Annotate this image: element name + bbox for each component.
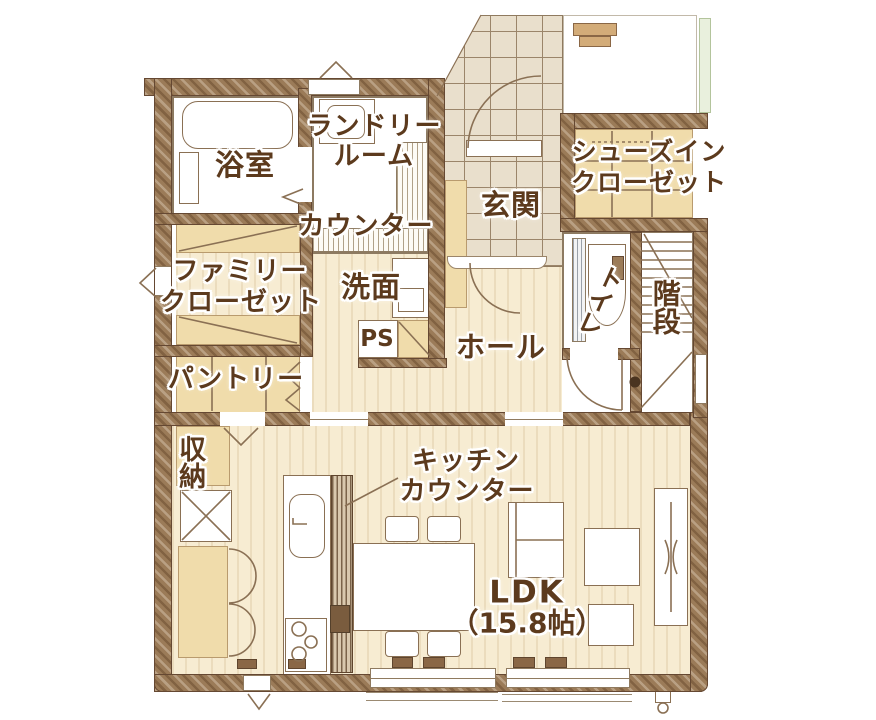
window-frame-tab — [423, 657, 445, 668]
label-kitchen-counter-line2: カウンター — [399, 478, 534, 505]
stairs-window — [695, 354, 707, 404]
toilet-door-opening — [570, 348, 618, 360]
wall-toilet-top — [560, 218, 708, 232]
vanity-bowl — [398, 288, 424, 312]
label-shoes-closet-line2: クローゼット — [571, 170, 727, 196]
label-hall: ホール — [456, 332, 546, 362]
storage-door-opening — [220, 412, 265, 426]
kitchen-opening — [310, 412, 368, 426]
bottom-hatch — [243, 675, 271, 691]
window-frame-tab — [392, 657, 413, 668]
front-door — [466, 140, 542, 157]
family-closet-shelf-bottom — [176, 315, 300, 345]
kitchen-sink — [289, 494, 325, 558]
laundry-door-mark — [320, 62, 352, 78]
outdoor-faucet-circle — [658, 703, 668, 713]
wall-shoes-top — [560, 113, 708, 129]
wall-washroom-bottom — [358, 358, 447, 368]
wall-top — [144, 78, 442, 96]
wall-bathroom-bottom — [154, 213, 313, 225]
label-pipe-space: PS — [360, 327, 393, 351]
wall-right-ldk — [690, 412, 708, 692]
entrance-step-band — [447, 256, 547, 269]
label-kitchen-counter-line1: キッチン — [412, 448, 520, 475]
window-frame-tab — [288, 659, 306, 669]
ldk-window-right — [506, 668, 630, 688]
label-shoes-closet-line1: シューズイン — [572, 139, 727, 165]
sofa — [508, 502, 564, 578]
wall-closet-bottom — [154, 345, 313, 357]
entrance-step-stone-upper — [573, 23, 617, 36]
ldk-window-left — [370, 668, 496, 688]
dining-chair — [385, 631, 419, 657]
window-sill — [366, 692, 498, 701]
entrance-step-stone-lower — [579, 36, 611, 47]
bathtub — [182, 101, 293, 149]
family-closet-shelf-top — [176, 223, 300, 253]
window-sill — [502, 694, 632, 702]
laundry-exterior-door — [308, 79, 360, 95]
label-stairs: 階段 — [650, 279, 679, 335]
refrigerator-space — [180, 490, 232, 542]
window-frame-tab — [545, 657, 567, 668]
label-washroom: 洗面 — [341, 272, 401, 302]
label-pantry: パントリー — [168, 366, 304, 393]
rug — [584, 528, 640, 586]
hatch-door-mark — [248, 694, 270, 709]
label-ldk-line2: （15.8帖） — [450, 608, 603, 637]
bathroom-door — [298, 147, 312, 202]
wall-toilet-stairs-divider — [630, 232, 642, 412]
hall-ldk-sliding-door — [505, 412, 563, 426]
floor-plan: 浴室 ランドリー ルーム カウンター シューズイン クローゼット 玄関 ファミリ… — [0, 0, 876, 720]
tv-board — [654, 488, 688, 626]
label-laundry-line2: ルーム — [334, 143, 414, 170]
shower-tray — [179, 152, 199, 204]
label-ldk-line1: LDK — [489, 577, 565, 610]
window-frame-tab — [513, 657, 535, 668]
kitchen-counter-end — [330, 605, 350, 633]
label-family-closet-line2: クローゼット — [160, 289, 322, 316]
kitchen-counter-top — [331, 475, 353, 673]
toilet-door-arc — [567, 355, 622, 410]
window-frame-tab — [237, 659, 257, 669]
label-counter: カウンター — [298, 213, 433, 240]
hedge-strip — [699, 18, 711, 113]
label-entrance: 玄関 — [481, 190, 541, 220]
label-laundry-line1: ランドリー — [306, 113, 441, 140]
dining-chair — [385, 516, 419, 542]
label-storage: 収納 — [175, 435, 203, 489]
dining-chair — [427, 516, 461, 542]
ps-duct-box — [398, 320, 432, 358]
kitchen-cabinet — [178, 546, 228, 658]
label-family-closet-line1: ファミリー — [172, 258, 307, 285]
label-bathroom: 浴室 — [215, 150, 275, 180]
shoe-cabinet — [445, 180, 467, 308]
